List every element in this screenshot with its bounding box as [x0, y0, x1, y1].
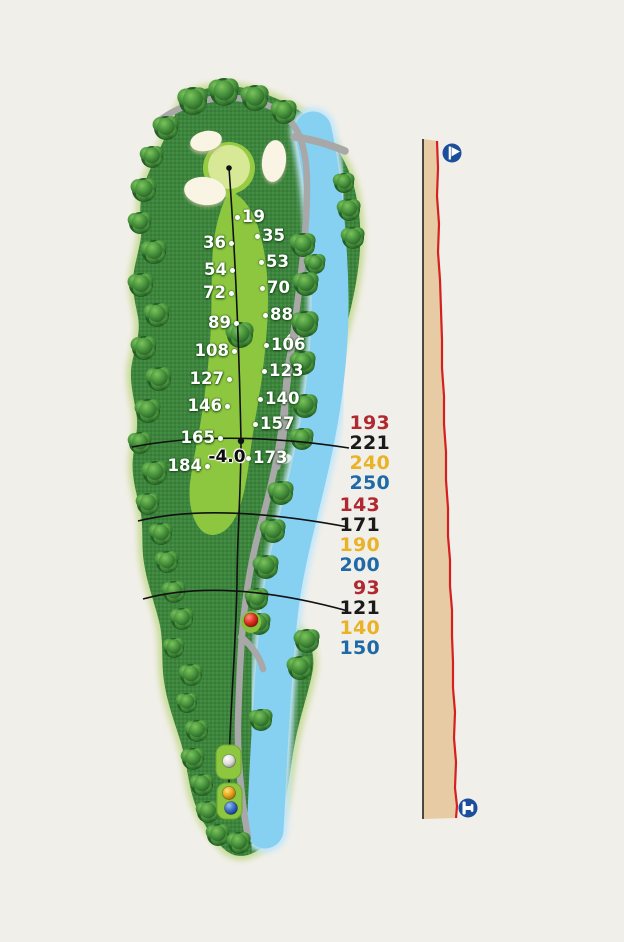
red-tee-ball — [244, 613, 258, 627]
green-flag-icon — [443, 144, 462, 163]
elevation-profile — [423, 139, 478, 819]
hole-map-graphic — [0, 0, 624, 942]
measure-point — [238, 438, 244, 444]
elevation-ground — [423, 139, 457, 819]
blue-tee-ball — [225, 802, 238, 815]
gold-tee-ball — [223, 787, 236, 800]
golf-hole-guide: -4.0 193 221 240 250 143 171 190 200 93 … — [0, 0, 624, 942]
white-tee-ball — [223, 755, 236, 768]
tee-icon — [459, 799, 478, 818]
green-target-point — [226, 165, 232, 171]
